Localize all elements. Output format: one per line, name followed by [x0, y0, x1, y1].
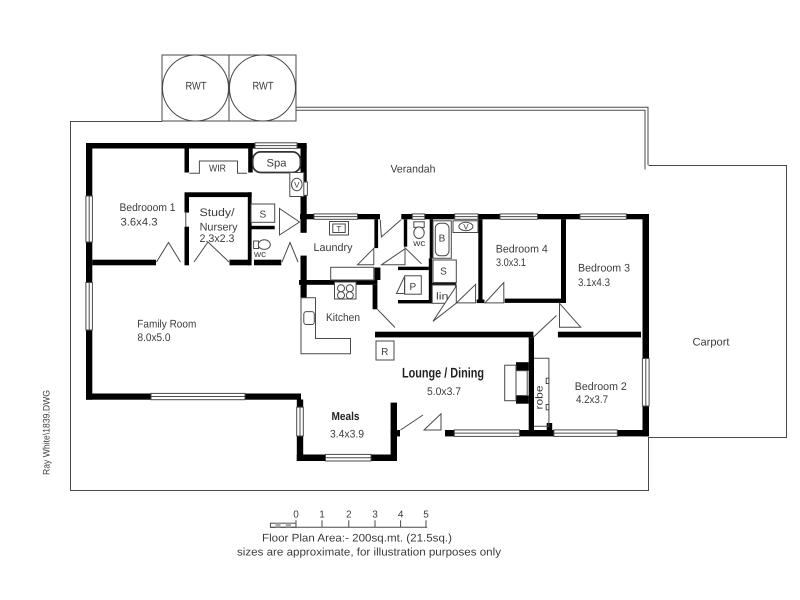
svg-text:Family Room: Family Room	[137, 319, 196, 331]
svg-text:WIR: WIR	[209, 164, 226, 175]
svg-text:Bedrooom 1: Bedrooom 1	[120, 202, 176, 214]
svg-text:T: T	[336, 225, 341, 234]
svg-text:4: 4	[398, 510, 404, 521]
svg-text:2: 2	[346, 510, 352, 521]
svg-text:5: 5	[423, 510, 429, 521]
svg-text:wc: wc	[412, 238, 426, 248]
svg-text:3.4x3.9: 3.4x3.9	[330, 429, 364, 441]
svg-text:sizes are approximate, for ill: sizes are approximate, for illustration …	[237, 547, 502, 559]
svg-text:B: B	[439, 234, 446, 245]
svg-text:Lounge / Dining: Lounge / Dining	[402, 365, 484, 381]
svg-text:Study/: Study/	[200, 207, 236, 219]
svg-text:Bedroom 4: Bedroom 4	[496, 244, 548, 256]
svg-text:4.2x3.7: 4.2x3.7	[576, 394, 608, 406]
svg-text:R: R	[381, 347, 388, 358]
svg-text:Laundry: Laundry	[314, 242, 353, 254]
svg-text:2.3x2.3: 2.3x2.3	[200, 233, 235, 245]
svg-text:5.0x3.7: 5.0x3.7	[427, 386, 461, 398]
svg-text:wc: wc	[253, 249, 267, 259]
svg-text:1: 1	[319, 510, 325, 521]
svg-text:Ray White\1839.DWG: Ray White\1839.DWG	[42, 390, 53, 475]
svg-text:RWT: RWT	[186, 81, 207, 93]
svg-text:3.1x4.3: 3.1x4.3	[578, 277, 610, 289]
svg-text:Floor Plan Area:- 200sq.mt. (2: Floor Plan Area:- 200sq.mt. (21.5sq.)	[262, 533, 452, 545]
svg-text:V: V	[463, 222, 469, 231]
svg-text:Kitchen: Kitchen	[326, 312, 360, 324]
svg-text:3: 3	[372, 510, 378, 521]
svg-text:V: V	[294, 181, 300, 190]
svg-text:RWT: RWT	[253, 81, 274, 93]
svg-text:S: S	[440, 267, 447, 278]
svg-text:Bedroom 2: Bedroom 2	[575, 381, 627, 393]
svg-text:robe: robe	[535, 385, 546, 410]
svg-text:S: S	[259, 210, 266, 221]
svg-text:8.0x5.0: 8.0x5.0	[138, 332, 171, 344]
svg-text:3.6x4.3: 3.6x4.3	[121, 216, 158, 228]
svg-text:Bedroom 3: Bedroom 3	[578, 263, 630, 275]
svg-text:0: 0	[293, 510, 299, 521]
svg-text:3.0x3.1: 3.0x3.1	[496, 257, 526, 269]
svg-text:Meals: Meals	[332, 411, 360, 423]
svg-text:Carport: Carport	[693, 337, 730, 349]
svg-text:P: P	[409, 282, 416, 293]
svg-text:Nursery: Nursery	[200, 222, 238, 234]
svg-text:Spa: Spa	[267, 158, 288, 170]
svg-text:Verandah: Verandah	[391, 164, 436, 176]
